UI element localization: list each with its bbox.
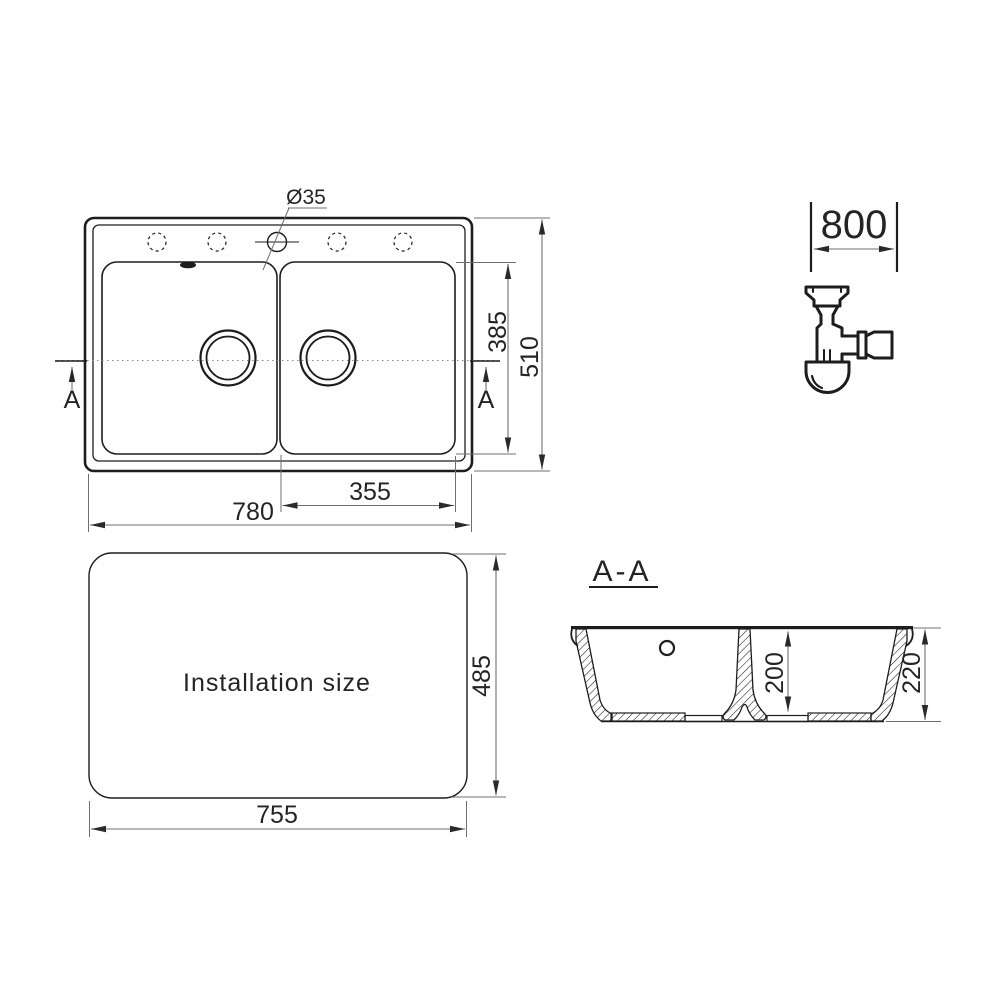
dimension-overall-width: 780 [89, 474, 472, 532]
drain-left [201, 331, 256, 386]
dimension-label-755: 755 [256, 801, 298, 829]
section-overflow-hole [660, 641, 674, 655]
dimension-bowl-depth: 200 [761, 632, 789, 712]
faucet-hole-dashed-1 [148, 233, 166, 251]
section-marker-right-label: A [478, 386, 495, 414]
siphon-body-ticks [824, 350, 830, 362]
dimension-label-485: 485 [468, 655, 496, 697]
faucet-holes [148, 233, 412, 252]
drain-right-outer-ring [301, 331, 356, 386]
bowl-left-outline [102, 262, 277, 454]
sink-top-view: Ø35 A A 385 510 [55, 186, 550, 532]
siphon-outlet-end [866, 332, 892, 358]
section-caption: A-A [592, 555, 651, 588]
installation-view: Installation size 485 755 [89, 553, 506, 837]
section-left-wall [576, 629, 612, 721]
dimension-right-bowl-width: 355 [281, 455, 456, 512]
dimension-label-510: 510 [516, 336, 544, 378]
faucet-hole-dashed-3 [328, 233, 346, 251]
section-view: A-A 200 220 [571, 555, 941, 722]
overflow-slot [180, 262, 196, 269]
faucet-hole-dashed-4 [394, 233, 412, 251]
section-drain-plate-left [685, 716, 722, 722]
installation-caption: Installation size [183, 669, 371, 697]
hole-diameter-callout: Ø35 [263, 186, 327, 270]
drain-left-inner-ring [207, 337, 250, 380]
section-marker-left: A [55, 361, 87, 414]
drain-left-outer-ring [201, 331, 256, 386]
siphon-outlet-pipe [842, 336, 858, 354]
section-marker-left-label: A [64, 386, 81, 414]
dimension-label-780: 780 [232, 498, 274, 526]
section-drain-plate-right [767, 716, 808, 722]
hole-diameter-label: Ø35 [286, 186, 326, 209]
siphon-neck [816, 306, 838, 324]
dimension-label-200: 200 [761, 652, 789, 694]
dimension-label-800: 800 [821, 203, 888, 247]
dimension-label-355: 355 [349, 478, 391, 506]
faucet-hole-dashed-2 [208, 233, 226, 251]
drain-right-inner-ring [307, 337, 350, 380]
dimension-label-385: 385 [484, 311, 512, 353]
siphon-icon [806, 287, 892, 393]
sink-outer-outline [85, 218, 472, 471]
sink-technical-drawing: Ø35 A A 385 510 [0, 0, 1000, 1000]
siphon-cabinet-view: 800 [806, 202, 897, 393]
section-center-divider [723, 629, 766, 720]
dimension-installation-width: 755 [90, 801, 467, 837]
section-floor-left [611, 713, 685, 721]
sink-rim-line [93, 225, 465, 461]
section-marker-right: A [470, 361, 500, 414]
drain-right [301, 331, 356, 386]
dimension-cabinet-width: 800 [811, 202, 897, 272]
dimension-label-220: 220 [898, 652, 926, 694]
section-floor-right [808, 713, 871, 721]
dimension-installation-depth: 485 [452, 554, 506, 797]
